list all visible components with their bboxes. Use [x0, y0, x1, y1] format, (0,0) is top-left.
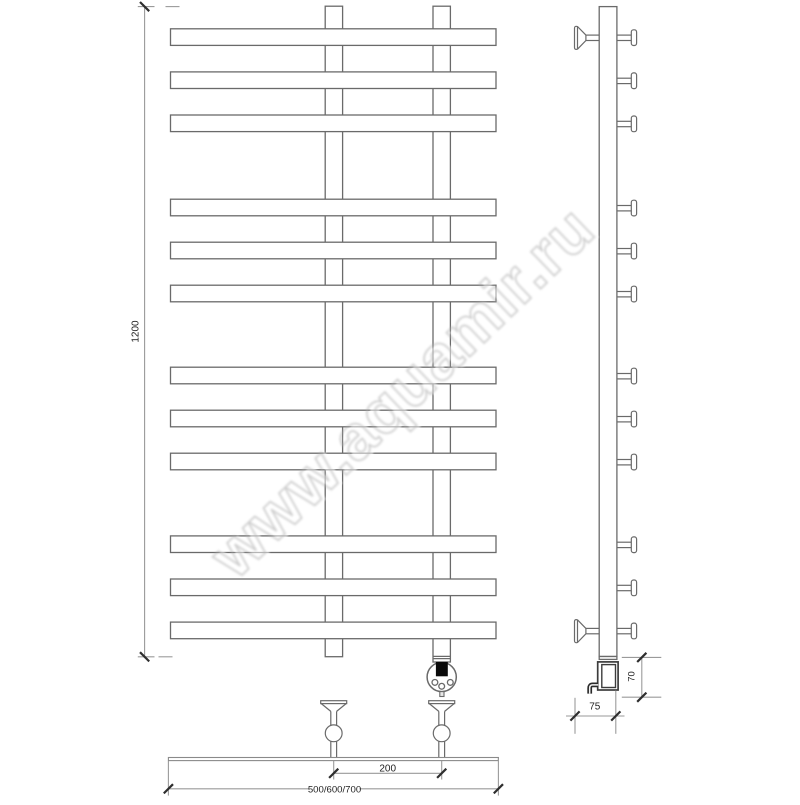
svg-text:200: 200	[379, 764, 396, 775]
svg-text:500/600/700: 500/600/700	[308, 784, 361, 795]
svg-text:75: 75	[589, 702, 601, 713]
svg-text:1200: 1200	[131, 320, 142, 343]
svg-text:70: 70	[627, 671, 638, 682]
